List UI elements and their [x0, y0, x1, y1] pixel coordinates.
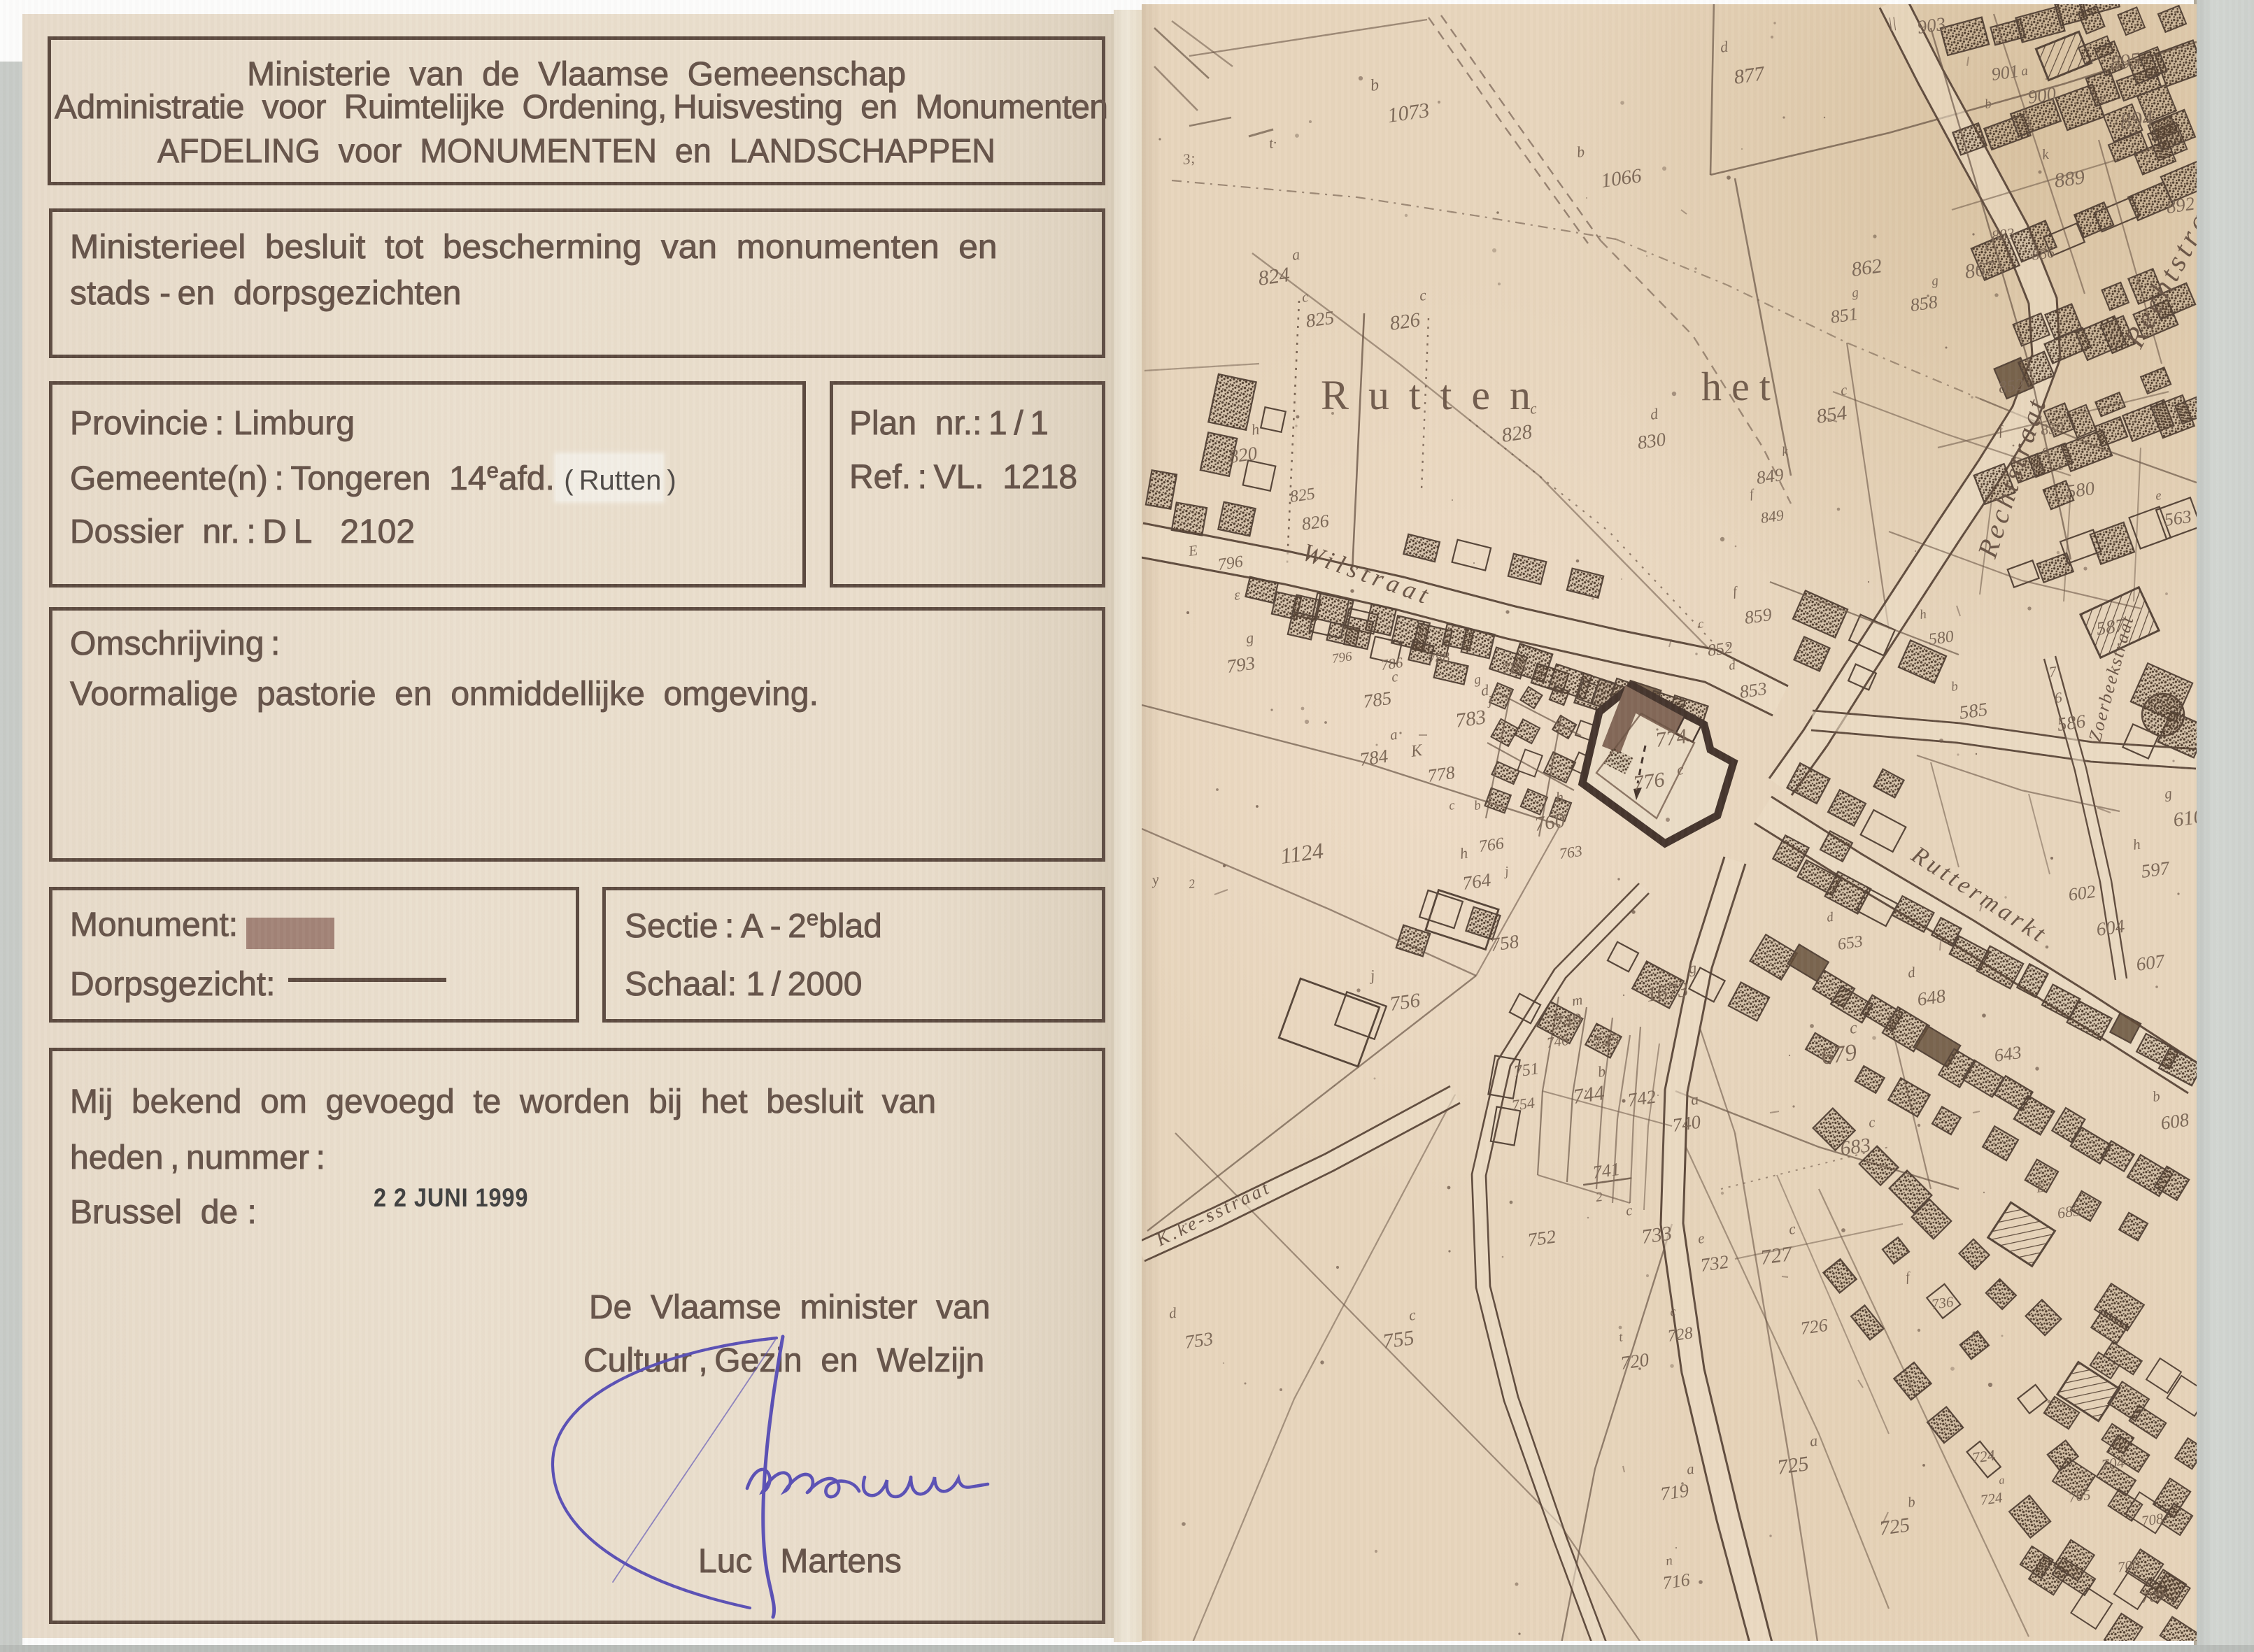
svg-text:g: g: [1931, 273, 1939, 289]
svg-text:f: f: [1749, 486, 1757, 501]
svg-text:852: 852: [1997, 376, 2025, 397]
svg-text:862: 862: [1850, 255, 1884, 281]
svg-text:c: c: [1418, 286, 1427, 304]
svg-text:c: c: [1839, 381, 1848, 399]
svg-text:t·: t·: [1268, 134, 1277, 152]
svg-text:K: K: [1409, 741, 1424, 761]
svg-text:727: 727: [1759, 1242, 1794, 1269]
svg-text:752: 752: [1526, 1226, 1557, 1251]
svg-text:g: g: [1851, 285, 1859, 301]
svg-text:c: c: [1848, 1019, 1859, 1038]
svg-text:778: 778: [1426, 762, 1456, 786]
svg-text:1073: 1073: [1386, 99, 1431, 127]
svg-text:796: 796: [1331, 649, 1354, 667]
svg-text:793: 793: [1226, 653, 1256, 677]
svg-text:728: 728: [1666, 1324, 1694, 1346]
svg-text:903: 903: [1916, 13, 1947, 38]
svg-text:853: 853: [1738, 678, 1769, 702]
svg-text:766: 766: [1477, 834, 1505, 856]
svg-text:867: 867: [1964, 257, 1998, 283]
svg-text:786: 786: [1380, 654, 1404, 674]
svg-text:563: 563: [2163, 506, 2193, 530]
svg-text:784: 784: [1359, 746, 1389, 770]
svg-text:2: 2: [1188, 876, 1196, 891]
svg-text:851: 851: [1829, 304, 1859, 327]
svg-text:d: d: [1649, 405, 1659, 423]
svg-text:724: 724: [1979, 1489, 2004, 1509]
svg-text:744: 744: [1571, 1081, 1606, 1109]
svg-text:g: g: [1473, 672, 1482, 688]
svg-text:a: a: [1291, 245, 1300, 264]
svg-text:d: d: [1719, 38, 1729, 56]
svg-text:725: 725: [1878, 1514, 1912, 1540]
svg-text:j: j: [1502, 864, 1510, 879]
svg-text:b: b: [1906, 1493, 1916, 1511]
svg-text:894: 894: [2118, 105, 2155, 134]
svg-text:9: 9: [2041, 444, 2050, 462]
svg-text:het: het: [1701, 364, 1780, 409]
svg-text:604: 604: [2095, 916, 2126, 940]
svg-text:f: f: [1732, 584, 1740, 599]
svg-text:608: 608: [2160, 1109, 2191, 1134]
svg-text:b: b: [1984, 97, 1992, 112]
svg-text:824: 824: [1256, 263, 1291, 290]
svg-text:610: 610: [2172, 805, 2206, 832]
svg-text:724: 724: [1971, 1446, 1996, 1467]
svg-text:d: d: [1168, 1304, 1177, 1322]
svg-text:k: k: [1781, 444, 1789, 460]
svg-text:754: 754: [1510, 1094, 1536, 1114]
svg-text:895: 895: [2109, 48, 2143, 75]
svg-text:740: 740: [1671, 1111, 1703, 1136]
svg-text:Rutten: Rutten: [1321, 372, 1550, 418]
svg-text:c: c: [1448, 798, 1456, 813]
svg-text:607: 607: [2135, 950, 2167, 975]
svg-text:j: j: [1367, 966, 1376, 984]
svg-text:700: 700: [2116, 1556, 2141, 1576]
svg-text:653: 653: [1836, 932, 1864, 954]
svg-text:883: 883: [1990, 225, 2015, 245]
svg-text:828: 828: [1501, 420, 1534, 447]
svg-text:776: 776: [1631, 768, 1666, 795]
svg-text:889: 889: [2053, 166, 2087, 192]
svg-text:760: 760: [1533, 809, 1567, 836]
svg-text:858: 858: [1909, 292, 1939, 315]
svg-text:h: h: [1554, 788, 1564, 806]
svg-text:849: 849: [1755, 464, 1785, 488]
svg-text:796: 796: [1217, 553, 1244, 574]
svg-text:580: 580: [1927, 627, 1955, 649]
svg-text:704: 704: [2100, 1453, 2125, 1474]
svg-text:602: 602: [2067, 881, 2097, 905]
svg-text:859: 859: [1743, 604, 1773, 628]
svg-text:h: h: [1459, 844, 1468, 862]
svg-text:756: 756: [1389, 989, 1422, 1016]
svg-text:852: 852: [1706, 639, 1734, 660]
svg-text:854: 854: [1815, 401, 1849, 428]
svg-text:725: 725: [1775, 1452, 1810, 1479]
svg-text:830: 830: [1636, 429, 1668, 453]
svg-text:g: g: [2163, 785, 2173, 802]
svg-text:h: h: [1250, 420, 1260, 439]
svg-text:755: 755: [1381, 1326, 1415, 1353]
svg-text:826: 826: [1389, 308, 1422, 335]
svg-text:e: e: [1696, 1230, 1706, 1247]
svg-text:679: 679: [1820, 1039, 1859, 1070]
svg-text:643: 643: [1993, 1042, 2023, 1066]
svg-text:1124: 1124: [1279, 838, 1325, 869]
svg-text:764: 764: [1461, 869, 1492, 894]
svg-text:825: 825: [1305, 307, 1335, 332]
svg-text:901: 901: [1990, 61, 2020, 85]
svg-text:785: 785: [1362, 688, 1393, 712]
svg-text:a: a: [1808, 1432, 1818, 1450]
svg-text:648: 648: [1916, 985, 1948, 1010]
svg-text:a: a: [2020, 64, 2029, 79]
svg-text:763: 763: [1558, 842, 1583, 862]
svg-text:e: e: [2155, 488, 2162, 504]
svg-text:736: 736: [1930, 1293, 1955, 1313]
svg-text:g: g: [1245, 629, 1254, 647]
svg-text:788: 788: [1426, 648, 1451, 668]
svg-text:t: t: [1618, 1330, 1624, 1345]
svg-text:n: n: [1665, 1553, 1673, 1569]
svg-text:749: 749: [1552, 1009, 1584, 1034]
svg-text:716: 716: [1661, 1569, 1692, 1593]
svg-text:720: 720: [1619, 1349, 1651, 1374]
svg-text:585: 585: [1958, 699, 1989, 723]
svg-text:825: 825: [1289, 485, 1316, 506]
svg-text:746: 746: [1545, 1032, 1570, 1051]
svg-text:586: 586: [2056, 711, 2088, 735]
svg-text:733: 733: [1640, 1222, 1674, 1248]
svg-text:y: y: [1149, 871, 1160, 888]
svg-text:a: a: [1998, 1474, 2005, 1487]
svg-text:877: 877: [1733, 62, 1767, 89]
svg-text:c: c: [1787, 1220, 1796, 1238]
svg-text:3;: 3;: [1181, 150, 1196, 168]
svg-text:c: c: [1697, 616, 1705, 631]
svg-text:820: 820: [1228, 443, 1259, 467]
svg-text:597: 597: [2140, 857, 2172, 882]
svg-text:c: c: [1300, 288, 1310, 306]
svg-text:726: 726: [1799, 1315, 1829, 1339]
svg-text:ε: ε: [1233, 586, 1241, 604]
svg-text:m: m: [1571, 991, 1583, 1009]
svg-text:b: b: [1596, 1062, 1606, 1081]
svg-text:k: k: [2041, 145, 2050, 163]
svg-text:741: 741: [1592, 1159, 1622, 1183]
svg-text:758: 758: [1489, 931, 1521, 955]
svg-text:580: 580: [2065, 478, 2097, 502]
svg-text:719: 719: [1659, 1480, 1691, 1504]
svg-text:783: 783: [1454, 706, 1488, 732]
svg-text:705: 705: [2067, 1486, 2092, 1506]
svg-text:708: 708: [2140, 1510, 2164, 1530]
svg-text:f: f: [1905, 1269, 1913, 1285]
svg-text:d: d: [1826, 910, 1835, 925]
svg-text:732: 732: [1699, 1251, 1730, 1276]
svg-text:a: a: [1689, 1090, 1699, 1109]
svg-text:753: 753: [1184, 1328, 1214, 1353]
svg-text:774: 774: [1654, 725, 1688, 752]
svg-text:849: 849: [1759, 506, 1785, 527]
svg-text:1066: 1066: [1600, 164, 1643, 192]
svg-text:b: b: [1369, 76, 1380, 95]
svg-text:c: c: [1408, 1306, 1417, 1324]
svg-text:751: 751: [1512, 1060, 1540, 1081]
svg-text:a: a: [1389, 726, 1398, 743]
svg-text:826: 826: [1300, 511, 1331, 534]
svg-text:h: h: [1919, 607, 1927, 622]
svg-text:h: h: [2132, 836, 2141, 853]
svg-text:685: 685: [2056, 1202, 2081, 1222]
svg-text:900: 900: [2027, 83, 2058, 108]
svg-text:d: d: [1906, 964, 1916, 981]
svg-text:a: a: [1685, 1460, 1695, 1478]
svg-text:2: 2: [1595, 1190, 1604, 1205]
svg-text:745: 745: [1592, 1030, 1622, 1053]
svg-text:b: b: [1575, 143, 1585, 161]
svg-text:683: 683: [1839, 1134, 1873, 1160]
svg-text:b: b: [2151, 1088, 2161, 1105]
svg-text:783: 783: [1501, 657, 1528, 679]
svg-text:709: 709: [2140, 1586, 2165, 1607]
svg-text:b: b: [1950, 679, 1959, 695]
svg-text:742: 742: [1626, 1086, 1657, 1111]
svg-text:c: c: [1867, 1113, 1876, 1131]
svg-text:c: c: [1624, 1202, 1633, 1219]
